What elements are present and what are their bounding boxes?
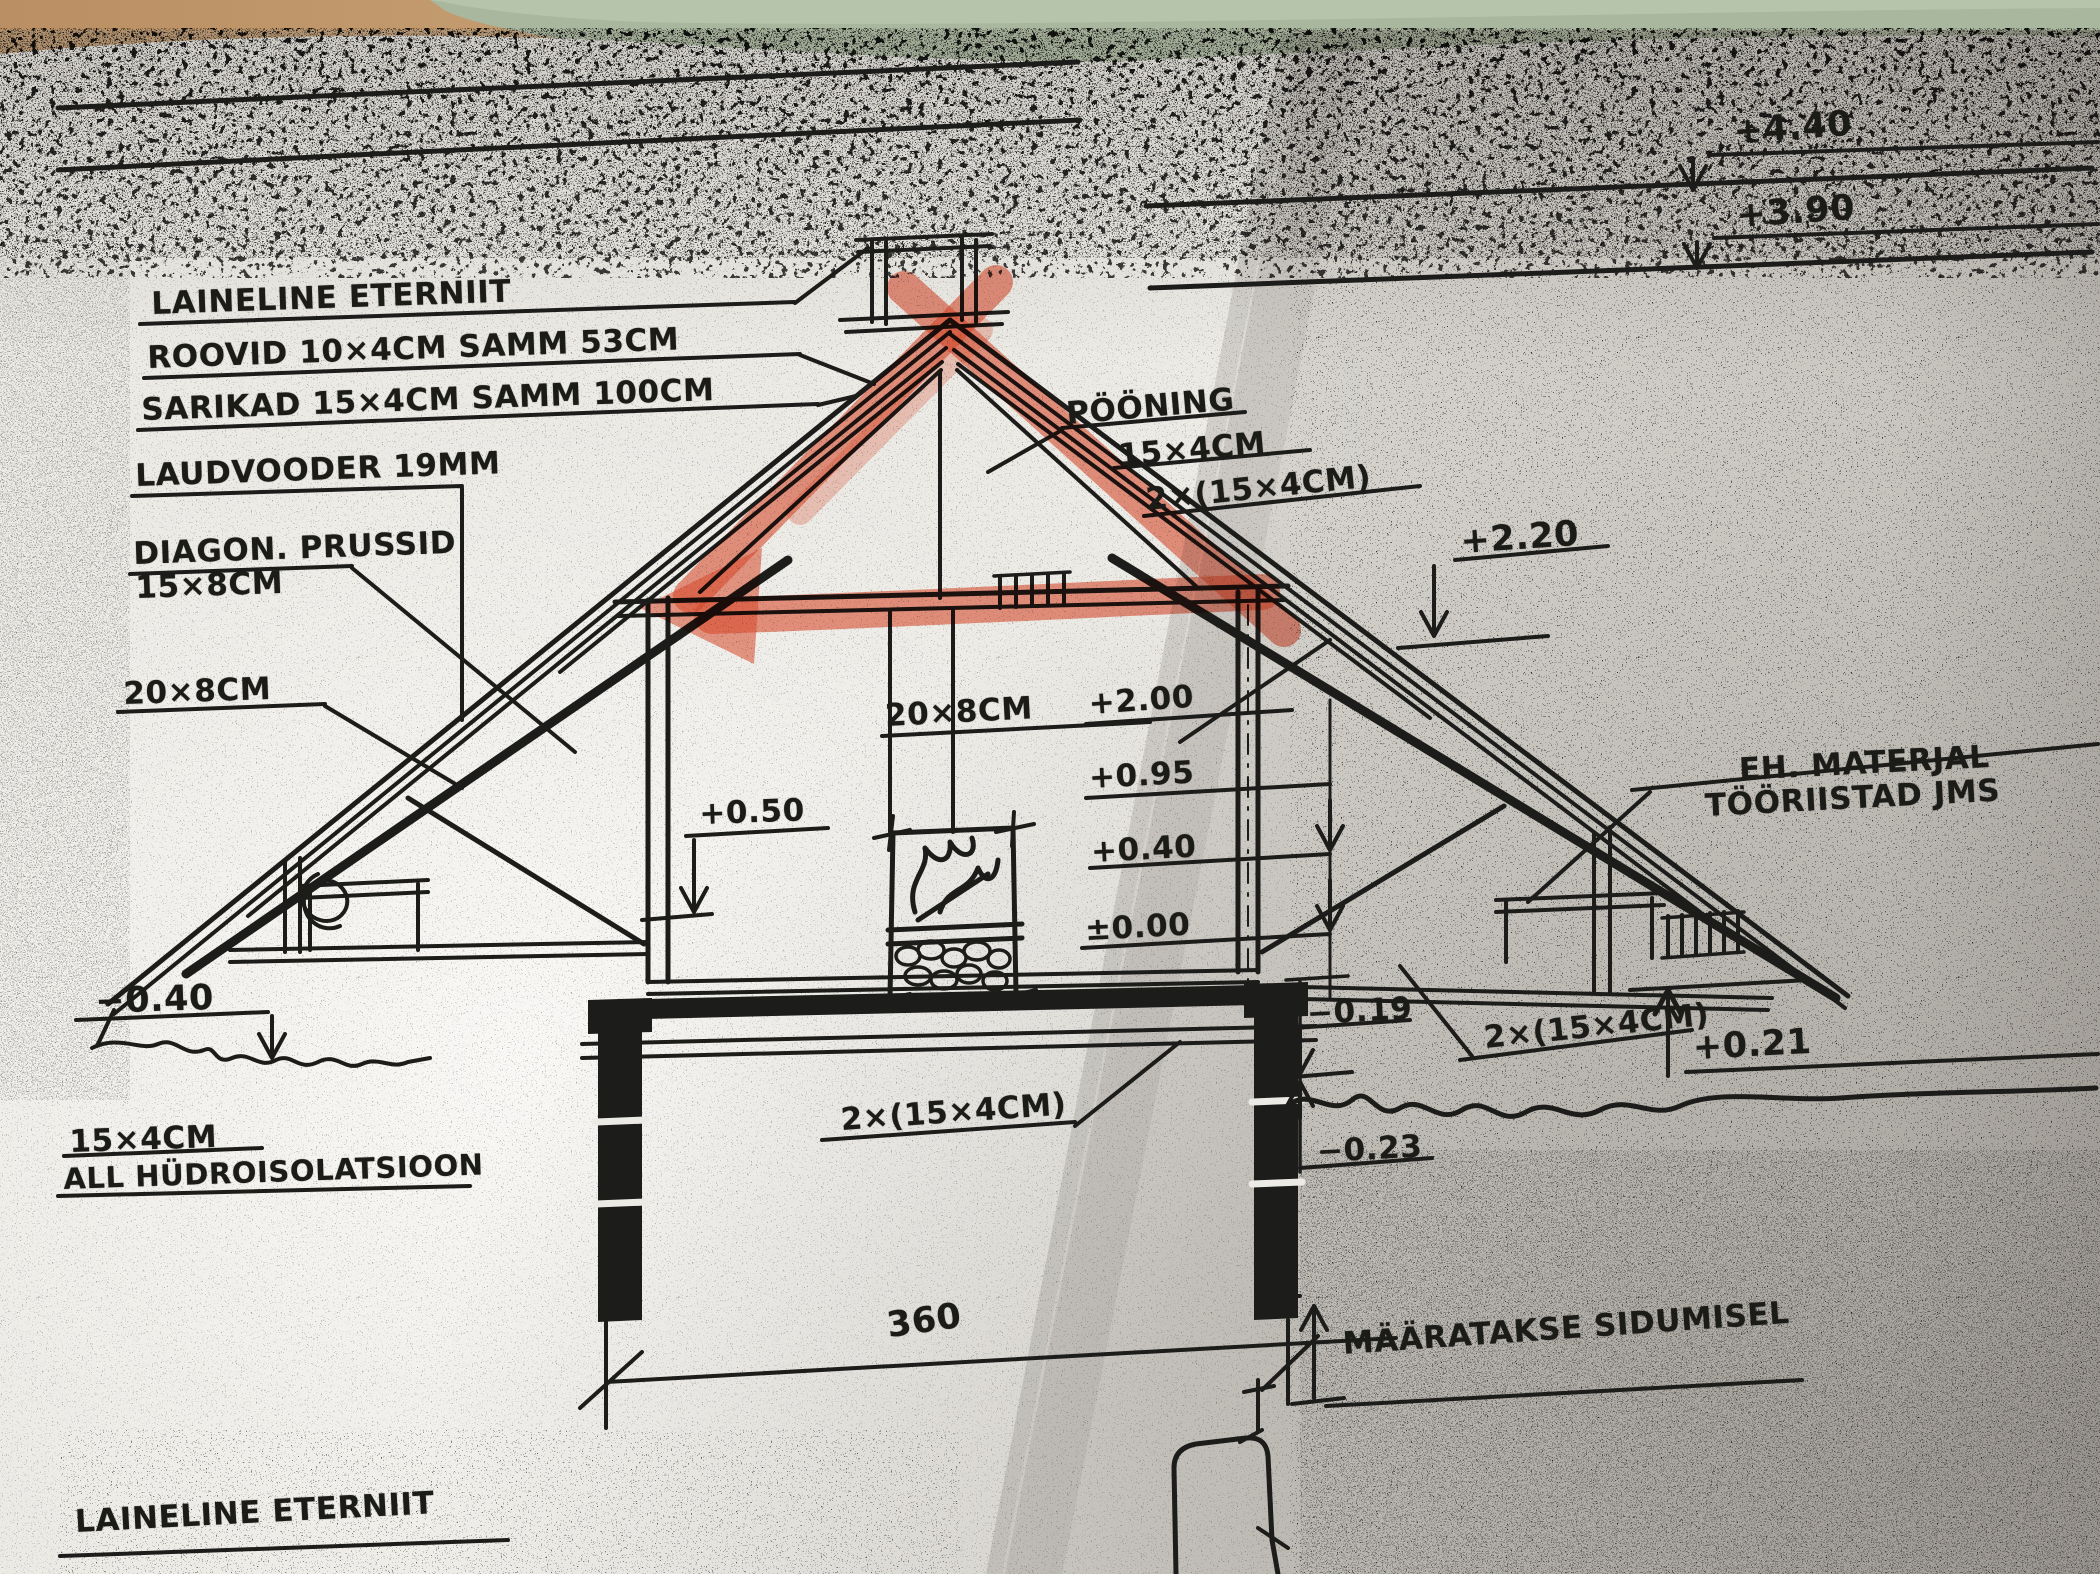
photo-of-blueprint: LAINELINE ETERNIIT ROOVID 10×4CM SAMM 53…: [0, 0, 2100, 1574]
label-level-000: ±0.00: [1084, 907, 1191, 948]
label-level-095: +0.95: [1088, 755, 1195, 796]
label-level-m023: −0.23: [1316, 1129, 1423, 1170]
label-diagon-prussid-size: 15×8CM: [135, 565, 284, 606]
label-level-200: +2.00: [1087, 679, 1195, 722]
label-hydro-size: 15×4CM: [69, 1119, 218, 1160]
label-level-440: +4.40: [1732, 104, 1853, 152]
label-level-390: +3.90: [1735, 188, 1856, 236]
label-level-220: +2.20: [1459, 514, 1580, 562]
label-level-050: +0.50: [699, 792, 806, 832]
label-level-040: +0.40: [1090, 829, 1197, 870]
label-level-021: +0.21: [1692, 1022, 1813, 1068]
label-level-m040: −0.40: [95, 978, 215, 1022]
label-beam-left: 20×8CM: [123, 671, 272, 712]
label-level-m019: −0.19: [1306, 991, 1413, 1032]
